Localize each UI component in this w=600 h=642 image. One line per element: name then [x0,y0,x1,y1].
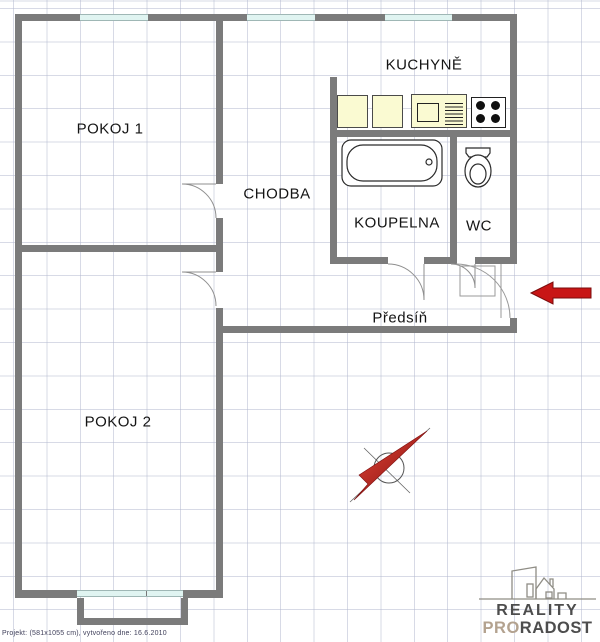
door-pokoj2-icon [182,272,216,306]
room-label-koupelna: KOUPELNA [354,215,440,232]
logo-line1: REALITY [477,603,598,619]
room-label-pokoj2: POKOJ 2 [85,414,152,431]
door-wc-icon [451,264,475,288]
room-label-kuchyne: KUCHYNĚ [386,57,463,74]
compass-north-icon [350,428,430,502]
entrance-arrow-icon [531,282,591,304]
toilet-icon [465,148,491,187]
floorplan-canvas: POKOJ 1 KUCHYNĚ CHODBA KOUPELNA WC Předs… [0,0,600,642]
room-label-predsin: Předsíň [372,310,427,327]
logo-line2: PRORADOST [477,620,598,637]
logo-buildings-icon [477,556,598,601]
logo-line2-radost: RADOST [520,619,593,637]
door-pokoj1-icon [182,184,216,218]
bathtub-icon [342,140,442,186]
realty-logo: REALITY PRORADOST [477,556,598,636]
door-entrance-icon [456,264,510,318]
door-koupelna-icon [388,264,424,300]
room-label-pokoj1: POKOJ 1 [77,121,144,138]
room-label-chodba: CHODBA [243,186,310,203]
plan-linework [0,0,600,642]
room-label-wc: WC [466,218,492,235]
logo-line2-pro: PRO [483,619,520,637]
project-footer-note: Projekt: (581x1055 cm), vytvořeno dne: 1… [2,630,167,637]
